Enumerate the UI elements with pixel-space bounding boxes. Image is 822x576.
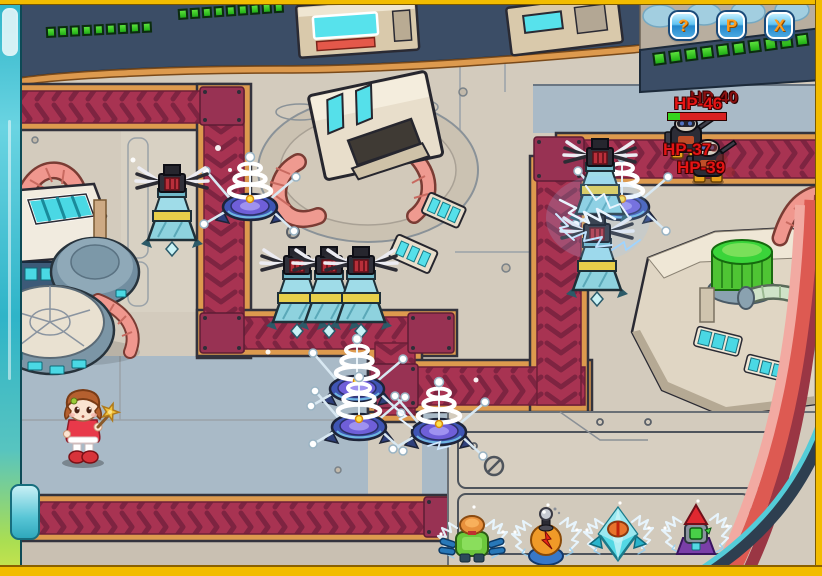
pause-button[interactable]: P [718, 12, 745, 39]
wave-segment [190, 7, 201, 19]
wave-segment [178, 8, 189, 20]
game-stage: HP-40 HP-46 HP-37 HP-39 [0, 0, 822, 576]
wave-segment [668, 49, 683, 64]
wave-segment [214, 6, 225, 18]
wave-segment [684, 47, 699, 62]
rocket-tower-icon [677, 505, 715, 554]
wave-segment [142, 21, 153, 33]
wave-segment [106, 23, 117, 35]
enemy-health-remaining [668, 113, 680, 120]
game-map [0, 0, 822, 576]
crystal-tower-icon [590, 508, 646, 560]
enemy-hp-label: HP-37 [663, 140, 711, 160]
shop-item-crystal-tower[interactable] [582, 498, 654, 570]
help-button[interactable]: ? [670, 12, 697, 39]
sidebar-glass-ornament [2, 8, 18, 56]
wave-segment [700, 45, 715, 60]
lightning-potion-icon [529, 508, 563, 566]
lightning-effect [546, 176, 650, 260]
shop-item-lightning-potion-tower[interactable] [510, 500, 582, 572]
wave-segment [652, 51, 667, 66]
enemy-hp-label: HP-39 [677, 158, 725, 178]
wave-segment [46, 26, 57, 38]
wave-segment [225, 5, 236, 17]
wave-segment [130, 22, 141, 34]
wave-segment [795, 33, 810, 48]
wave-segment [94, 24, 105, 36]
wave-segment [716, 43, 731, 58]
wave-segment [237, 4, 248, 16]
shop-item-mech-cannon-tower[interactable] [436, 502, 508, 574]
enemy-hp-label: HP-46 [674, 94, 722, 114]
wave-segment [747, 39, 762, 54]
sidebar-divider [8, 120, 11, 380]
wave-segment [249, 3, 260, 15]
shop-item-rocket-tower[interactable] [660, 496, 732, 568]
sidebar-glass-button[interactable] [10, 484, 40, 540]
enemy-health-bar [667, 112, 727, 121]
wave-segment [202, 7, 213, 19]
frame-border-top [0, 0, 822, 5]
wave-segment [70, 25, 81, 37]
frame-border-right [815, 0, 822, 576]
wave-segment [118, 23, 129, 35]
wave-segment [58, 26, 69, 38]
wave-segment [82, 25, 93, 37]
conveyor-machine-box-1 [296, 0, 419, 58]
close-button[interactable]: X [766, 12, 793, 39]
frame-border-bottom [0, 565, 822, 576]
wave-segment [731, 41, 746, 56]
